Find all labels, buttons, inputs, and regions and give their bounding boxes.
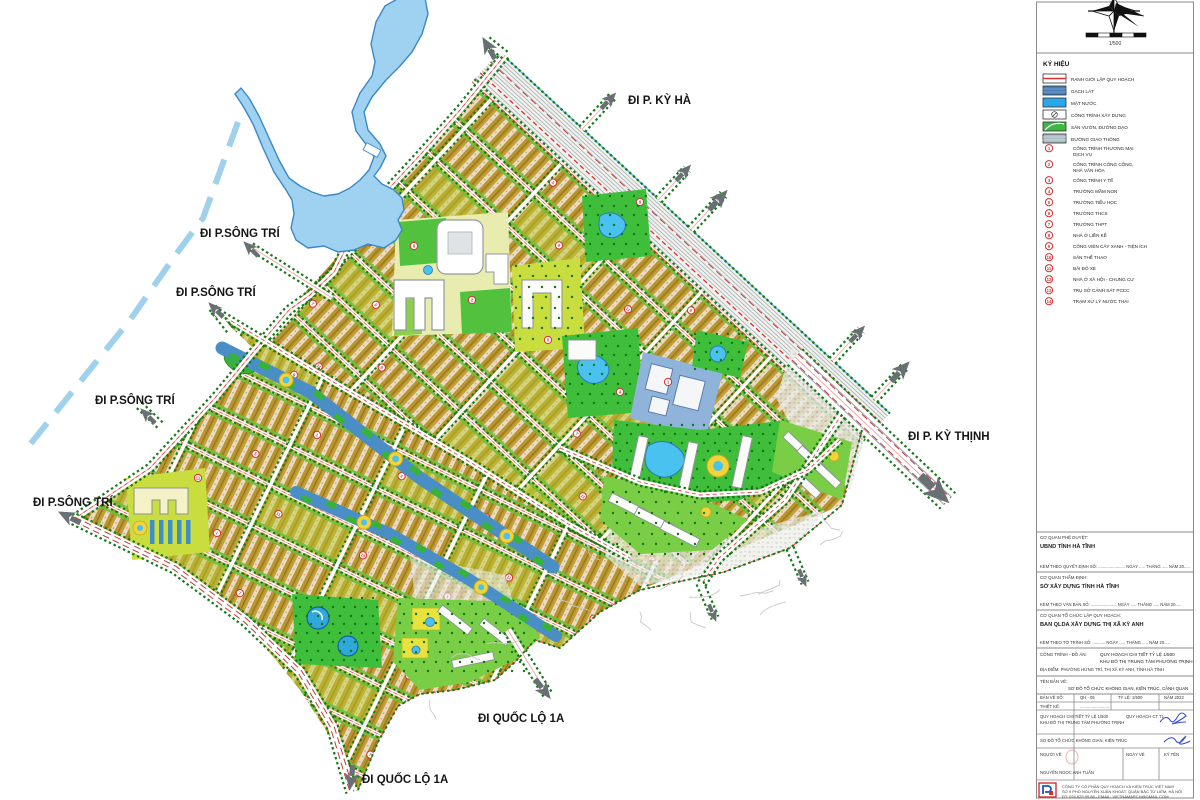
svg-text:ĐI P.SÔNG TRÍ: ĐI P.SÔNG TRÍ: [95, 394, 175, 407]
svg-text:THIẾT KẾ:: THIẾT KẾ:: [1040, 704, 1060, 709]
svg-text:TRỤ SỞ CẢNH SÁT PCCC: TRỤ SỞ CẢNH SÁT PCCC: [1073, 287, 1130, 293]
svg-text:QUY HOẠCH CHI TIẾT TỶ LỆ 1/500: QUY HOẠCH CHI TIẾT TỶ LỆ 1/500: [1100, 650, 1175, 657]
svg-text:.........................: .........................: [1080, 704, 1109, 709]
svg-text:NĂM 2022: NĂM 2022: [1164, 695, 1184, 700]
svg-text:BẢN VẼ SỐ:: BẢN VẼ SỐ:: [1040, 695, 1064, 700]
svg-text:TRƯỜNG THPT: TRƯỜNG THPT: [1073, 221, 1107, 227]
svg-text:ĐI P. KỲ THỊNH: ĐI P. KỲ THỊNH: [908, 430, 990, 443]
svg-text:MẶT NƯỚC: MẶT NƯỚC: [1071, 100, 1097, 106]
svg-text:ĐI QUỐC LỘ 1A: ĐI QUỐC LỘ 1A: [478, 711, 564, 725]
svg-text:SỞ XÂY DỰNG TỈNH HÀ TĨNH: SỞ XÂY DỰNG TỈNH HÀ TĨNH: [1040, 583, 1119, 590]
svg-text:BAN QLDA XÂY DỰNG THỊ XÃ KỲ AN: BAN QLDA XÂY DỰNG THỊ XÃ KỲ ANH: [1040, 621, 1144, 628]
svg-text:TRƯỜNG MẦM NON: TRƯỜNG MẦM NON: [1073, 188, 1117, 194]
svg-text:KHU ĐÔ THỊ TRUNG TÂM PHƯỜNG TR: KHU ĐÔ THỊ TRUNG TÂM PHƯỜNG TRỊNH: [1100, 658, 1193, 664]
svg-text:KÝ HIỆU: KÝ HIỆU: [1043, 59, 1070, 68]
svg-text:CÔNG VIÊN CÂY XANH - TIỆN ÍCH: CÔNG VIÊN CÂY XANH - TIỆN ÍCH: [1073, 242, 1147, 249]
svg-text:KÈM THEO TỜ TRÌNH SỐ: ........: KÈM THEO TỜ TRÌNH SỐ: ........... NGÀY .…: [1040, 640, 1170, 645]
svg-text:SÂN THỂ THAO: SÂN THỂ THAO: [1073, 254, 1107, 260]
svg-text:KÈM THEO QUYẾT ĐỊNH SỐ: ......: KÈM THEO QUYẾT ĐỊNH SỐ: ................…: [1040, 564, 1190, 569]
svg-text:QH - 05: QH - 05: [1080, 695, 1095, 700]
svg-text:CÔNG TRÌNH XÂY DỰNG: CÔNG TRÌNH XÂY DỰNG: [1071, 112, 1126, 118]
svg-text:QUY HOẠCH CHI TIẾT TỶ LỆ 1/500: QUY HOẠCH CHI TIẾT TỶ LỆ 1/500: [1040, 714, 1109, 719]
svg-text:TRƯỜNG TIỂU HỌC: TRƯỜNG TIỂU HỌC: [1073, 199, 1118, 205]
svg-text:TỶ LỆ: 1/500: TỶ LỆ: 1/500: [1118, 695, 1143, 700]
svg-text:13: 13: [1047, 288, 1052, 293]
svg-text:QUY HOẠCH CT TL:: QUY HOẠCH CT TL:: [1126, 714, 1165, 719]
svg-text:BÃI ĐỖ XE: BÃI ĐỖ XE: [1073, 265, 1096, 271]
svg-text:NHÀ Ở XÃ HỘI - CHUNG CƯ: NHÀ Ở XÃ HỘI - CHUNG CƯ: [1073, 276, 1134, 282]
svg-text:SÂN VƯỜN, ĐƯỜNG DẠO: SÂN VƯỜN, ĐƯỜNG DẠO: [1071, 124, 1128, 130]
svg-text:ĐT: 024.625.99.88 - EMAIL: V: ĐT: 024.625.99.88 - EMAIL: VIETNAMARCH@G…: [1062, 794, 1169, 799]
svg-text:ĐI P.SÔNG TRÍ: ĐI P.SÔNG TRÍ: [176, 286, 256, 299]
svg-text:1/500: 1/500: [1109, 41, 1122, 47]
svg-text:CƠ QUAN THẨM ĐỊNH:: CƠ QUAN THẨM ĐỊNH:: [1040, 575, 1088, 580]
svg-text:CÔNG TRÌNH CÔNG CỘNG,: CÔNG TRÌNH CÔNG CỘNG,: [1073, 161, 1133, 167]
svg-text:TRẠM XỬ LÝ NƯỚC THẢI: TRẠM XỬ LÝ NƯỚC THẢI: [1073, 298, 1129, 304]
svg-text:ĐƯỜNG GIAO THÔNG: ĐƯỜNG GIAO THÔNG: [1071, 136, 1120, 142]
svg-text:TÊN BẢN VẼ:: TÊN BẢN VẼ:: [1040, 679, 1067, 684]
svg-text:14: 14: [1047, 299, 1052, 304]
svg-text:UBND TỈNH HÀ TĨNH: UBND TỈNH HÀ TĨNH: [1040, 543, 1095, 550]
svg-text:CÔNG TRÌNH - ĐỒ ÁN:: CÔNG TRÌNH - ĐỒ ÁN:: [1040, 652, 1087, 657]
svg-text:12: 12: [1047, 277, 1052, 282]
svg-text:TRƯỜNG THCS: TRƯỜNG THCS: [1073, 210, 1108, 216]
svg-text:GẠCH LÁT: GẠCH LÁT: [1071, 88, 1094, 94]
svg-text:KÈM THEO VĂN BẢN SỐ: .........: KÈM THEO VĂN BẢN SỐ: ...................…: [1040, 602, 1181, 607]
svg-text:SƠ ĐỒ TỔ CHỨC KHÔNG GIAN, KIẾN: SƠ ĐỒ TỔ CHỨC KHÔNG GIAN, KIẾN TRÚC: [1040, 738, 1127, 743]
svg-text:NGÀY VẼ: NGÀY VẼ: [1126, 752, 1145, 757]
svg-text:CÔNG TRÌNH Y TẾ: CÔNG TRÌNH Y TẾ: [1073, 177, 1113, 183]
svg-text:DỊCH VỤ: DỊCH VỤ: [1073, 152, 1092, 157]
svg-text:CÔNG TRÌNH THƯƠNG MẠI: CÔNG TRÌNH THƯƠNG MẠI: [1073, 145, 1134, 151]
svg-text:11: 11: [1047, 266, 1052, 271]
svg-text:ĐI P. KỲ HÀ: ĐI P. KỲ HÀ: [628, 94, 691, 107]
svg-text:NGUYỄN NGỌC ANH TUẤN: NGUYỄN NGỌC ANH TUẤN: [1040, 770, 1094, 775]
svg-text:RANH GIỚI LẬP QUY HOẠCH: RANH GIỚI LẬP QUY HOẠCH: [1071, 76, 1134, 82]
svg-text:CƠ QUAN PHÊ DUYỆT:: CƠ QUAN PHÊ DUYỆT:: [1040, 535, 1088, 540]
svg-text:KÝ TÊN: KÝ TÊN: [1164, 752, 1179, 757]
svg-text:10: 10: [1047, 255, 1052, 260]
svg-text:SƠ ĐỒ TỔ CHỨC KHÔNG GIAN, KIẾN: SƠ ĐỒ TỔ CHỨC KHÔNG GIAN, KIẾN TRÚC, CẢN…: [1068, 686, 1188, 691]
svg-text:ĐI P.SÔNG TRÍ: ĐI P.SÔNG TRÍ: [200, 227, 280, 240]
svg-text:ĐỊA ĐIỂM: PHƯỜNG HƯNG TRÍ, THỊ: ĐỊA ĐIỂM: PHƯỜNG HƯNG TRÍ, THỊ XÃ KỲ ANH…: [1040, 667, 1164, 672]
svg-text:ĐI QUỐC LỘ 1A: ĐI QUỐC LỘ 1A: [362, 772, 448, 786]
svg-text:11: 11: [196, 476, 201, 481]
svg-text:KHU ĐÔ THỊ TRUNG TÂM PHƯỜNG TR: KHU ĐÔ THỊ TRUNG TÂM PHƯỜNG TRỊNH: [1040, 720, 1124, 725]
svg-text:NHÀ VĂN HÓA: NHÀ VĂN HÓA: [1073, 167, 1106, 173]
svg-text:NHÀ Ở LIỀN KỀ: NHÀ Ở LIỀN KỀ: [1073, 232, 1107, 238]
svg-text:CƠ QUAN TỔ CHỨC LẬP QUY HOẠCH:: CƠ QUAN TỔ CHỨC LẬP QUY HOẠCH:: [1040, 613, 1121, 618]
svg-text:NGƯỜI VẼ:: NGƯỜI VẼ:: [1040, 752, 1063, 757]
svg-text:ĐI P.SÔNG TRÍ: ĐI P.SÔNG TRÍ: [33, 496, 113, 509]
